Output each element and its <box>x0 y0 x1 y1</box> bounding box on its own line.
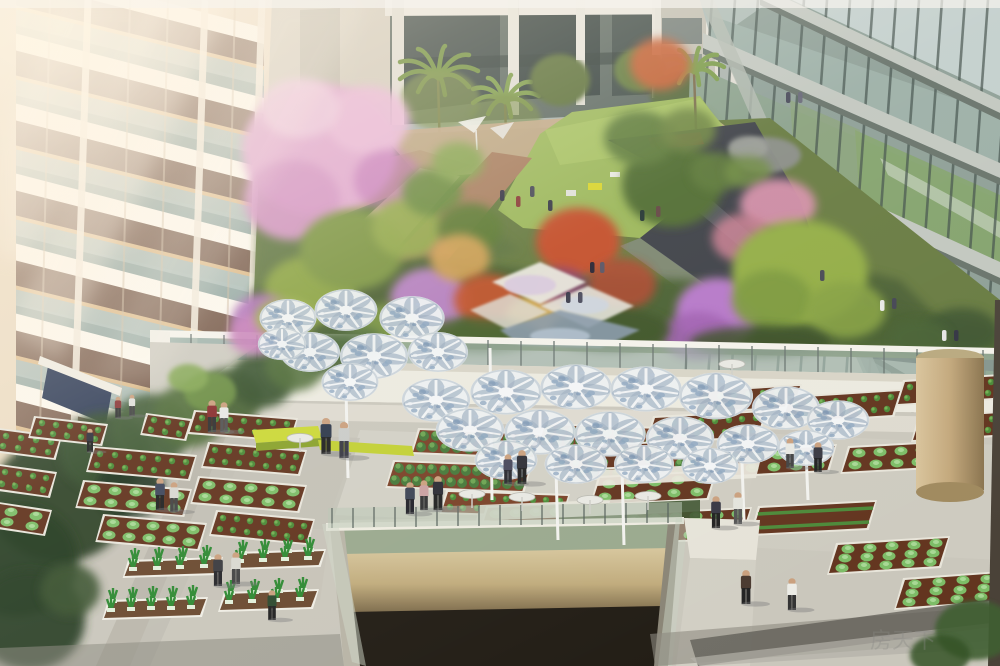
svg-text:房天下: 房天下 <box>870 628 936 653</box>
